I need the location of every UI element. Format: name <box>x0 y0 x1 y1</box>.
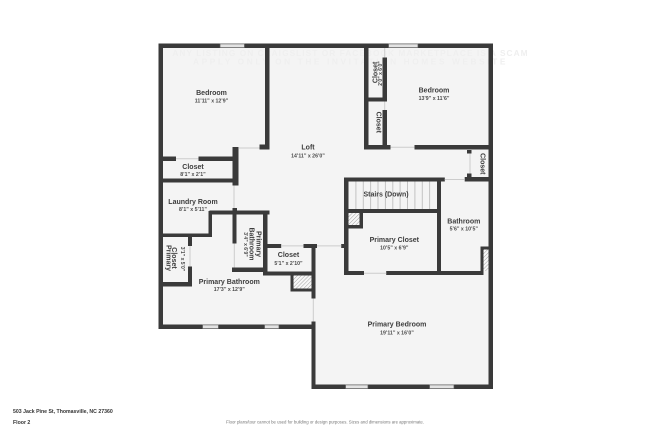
svg-text:3’1” x 5’0”: 3’1” x 5’0” <box>179 247 185 272</box>
svg-text:11’11” x 12’9”: 11’11” x 12’9” <box>195 98 229 104</box>
svg-text:13’9” x 11’6”: 13’9” x 11’6” <box>419 96 450 102</box>
svg-text:Floor 2: Floor 2 <box>13 420 30 426</box>
svg-text:Loft: Loft <box>301 145 315 152</box>
svg-text:3’4” x 6’9”: 3’4” x 6’9” <box>242 232 248 257</box>
svg-text:5’1” x 2’10”: 5’1” x 2’10” <box>274 261 303 267</box>
svg-text:Bathroom: Bathroom <box>447 218 480 225</box>
svg-text:Closet: Closet <box>375 112 382 134</box>
svg-text:17’3” x 12’9”: 17’3” x 12’9” <box>214 287 246 293</box>
svg-text:14’11” x 26’0”: 14’11” x 26’0” <box>291 153 325 159</box>
svg-text:Primary Bathroom: Primary Bathroom <box>199 279 260 286</box>
svg-text:10’5” x 6’9”: 10’5” x 6’9” <box>380 246 409 252</box>
svg-text:Closet: Closet <box>478 153 485 175</box>
svg-text:Primary Closet: Primary Closet <box>370 237 420 244</box>
svg-text:5’6” x 10’5”: 5’6” x 10’5” <box>450 227 479 233</box>
svg-text:Floor plans/tour cannot be use: Floor plans/tour cannot be used for buil… <box>226 420 424 425</box>
svg-text:Laundry Room: Laundry Room <box>168 199 217 206</box>
svg-text:Closet: Closet <box>182 164 204 171</box>
svg-text:Primary Bedroom: Primary Bedroom <box>368 322 427 329</box>
svg-text:Closet: Closet <box>278 252 300 259</box>
svg-text:8’1” x 2’1”: 8’1” x 2’1” <box>180 172 206 178</box>
svg-text:2’0” x 6’0”: 2’0” x 6’0” <box>378 61 384 86</box>
svg-text:APPLY ONLY ON THE INVITATION H: APPLY ONLY ON THE INVITATION HOMES WEBSI… <box>193 56 508 66</box>
svg-text:Bedroom: Bedroom <box>419 88 450 95</box>
svg-text:Closet: Closet <box>170 247 177 269</box>
svg-text:Stairs (Down): Stairs (Down) <box>363 191 408 198</box>
svg-text:Bedroom: Bedroom <box>196 90 227 97</box>
svg-text:503 Jack Pine St, Thomasville,: 503 Jack Pine St, Thomasville, NC 27360 <box>13 409 113 415</box>
svg-text:19’11” x 16’0”: 19’11” x 16’0” <box>380 330 414 336</box>
svg-text:8’1” x 5’11”: 8’1” x 5’11” <box>179 207 207 213</box>
